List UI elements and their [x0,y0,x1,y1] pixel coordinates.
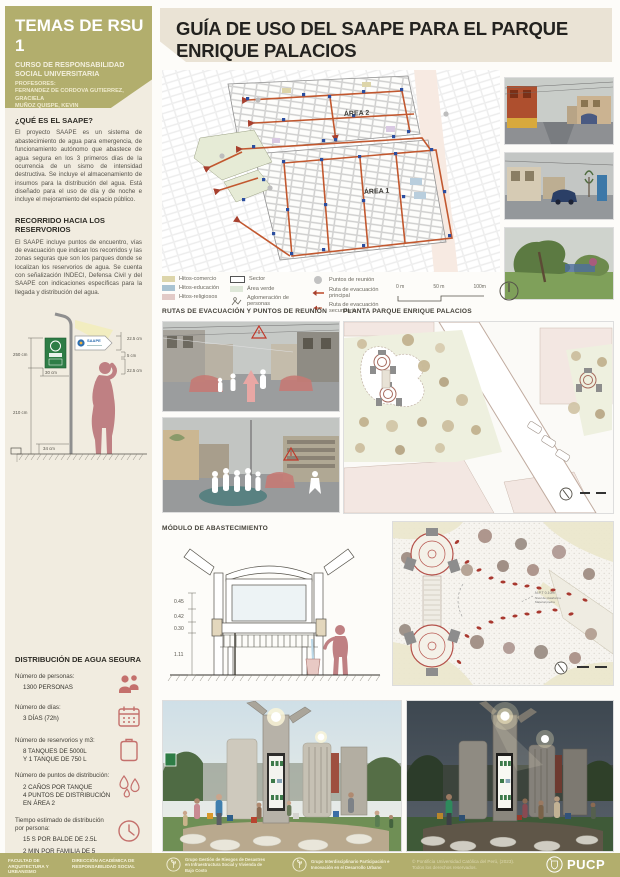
stat-label: Número de reservorios y m3: [15,737,111,745]
group2-logo-icon [292,857,307,872]
stat-label: Tiempo estimado de distribución por pers… [15,817,111,833]
legend-col-areas: Sector Área verde Aglomeración de person… [230,276,308,310]
routes-section-heading: RUTAS DE EVACUACIÓN Y PUNTOS DE REUNIÓN [162,308,327,315]
render-day [162,700,402,852]
stat-value: Y 1 TANQUE DE 750 L [23,756,111,764]
stat-personas: Número de personas: 1300 PERSONAS [5,673,152,696]
professor-name: FERNANDEZ DE CORDOVA GUTIERREZ, GRACIELA [15,88,144,103]
clock-icon [116,818,142,844]
route-primary-arrow-icon [312,289,325,297]
section-heading: ¿QUÉ ES EL SAAPE? [15,116,142,125]
module-detail-plan: N.P.T 0.10m Nivel de plataforma Material… [392,521,614,686]
stat-reservorios: Número de reservorios y m3: 8 TANQUES DE… [5,737,152,765]
section-body: El proyecto SAAPE es un sistema de abast… [15,129,142,204]
footer-faculty-label: FACULTAD DE ARQUITECTURA Y URBANISMO [8,858,49,874]
pucp-logo: PUCP [546,856,605,873]
footer-group2-label: Grupo Interdisciplinario Participación e… [311,859,393,870]
people-icon [116,674,142,696]
compass-icon [498,280,520,302]
legend-swatch-comercio [162,276,175,282]
section-dim: 0.45 [174,599,184,605]
pucp-shield-icon [546,856,563,873]
scale-label: 50 m [433,284,444,290]
signpost-diagram: SAAPE 250 cm 30 cm 2 [9,304,155,462]
context-photo-street-1 [504,77,614,145]
poster-title: GUÍA DE USO DEL SAAPE PARA EL PARQUE ENR… [176,18,612,62]
context-photo-park [504,227,614,300]
sidebar-header: TEMAS DE RSU 1 CURSO DE RESPONSABILIDAD … [5,6,152,108]
copyright-line: Todos los derechos reservados. [412,865,532,871]
section-what-is-saape: ¿QUÉ ES EL SAAPE? El proyecto SAAPE es u… [5,116,152,205]
stat-label: Número de puntos de distribución: [15,772,111,780]
calendar-icon [116,705,142,729]
footer: FACULTAD DE ARQUITECTURA Y URBANISMO DIR… [0,853,620,877]
dim-label: 5 cm [127,353,137,358]
group1-logo-icon [166,857,181,872]
dim-label: 30 cm [45,370,57,375]
stat-value: 8 TANQUES DE 5000L [23,748,111,756]
legend-label: Puntos de reunión [329,277,374,283]
sidebar: TEMAS DE RSU 1 CURSO DE RESPONSABILIDAD … [5,6,152,853]
dim-label: 210 cm [13,410,28,415]
module-section-drawing: 0.45 0.42 0.30 1.11 [162,535,388,693]
footer-copyright: © Pontificia Universidad Católica del Pe… [412,859,532,871]
professor-name: MUÑOZ QUISPE, KEVIN [15,103,144,110]
footer-group1-label: Grupo Gestión de Riesgos de Desastres en… [185,857,271,873]
section-distribucion: DISTRIBUCIÓN DE AGUA SEGURA [5,655,152,664]
course-name: CURSO DE RESPONSABILIDAD SOCIAL UNIVERSI… [15,60,135,78]
section-dim: 0.30 [174,626,184,632]
professors-label: PROFESORES: [15,81,144,88]
dim-label: 22.5 cm [127,368,142,373]
map-scale-bar: 0 m 50 m 100m [396,284,486,308]
section-heading: RECORRIDO HACIA LOS RESERVORIOS [15,216,115,235]
plan-section-heading: PLANTA PARQUE ENRIQUE PALACIOS [343,308,472,315]
dim-label: 250 cm [13,352,28,357]
context-photo-street-2 [504,152,614,220]
legend-label: Sector [249,276,265,282]
poster-series-title: TEMAS DE RSU 1 [15,16,144,56]
scale-label: 100m [473,284,486,290]
evacuation-map: ÁREA 2 ÁREA 1 [162,70,500,272]
stat-value: 4 PUNTOS DE DISTRIBUCIÓN EN ÁREA 2 [23,792,111,809]
saape-sign-label: SAAPE [87,338,101,343]
evacuation-photo-1 [162,321,340,412]
stat-value: 2 CAÑOS POR TANQUE [23,784,111,792]
dim-label: 34 cm [43,446,55,451]
legend-swatch-religiosos [162,294,175,300]
legend-label: Aglomeración de personas [247,295,308,307]
stat-label: Número de personas: [15,673,111,681]
legend-col-hitos: Hitos-comercio Hitos-educación Hitos-rel… [162,276,226,303]
legend-label: Ruta de evacuación principal [329,287,388,299]
title-band: GUÍA DE USO DEL SAAPE PARA EL PARQUE ENR… [160,8,612,62]
plan-note: N.P.T 0.10m [535,591,555,595]
legend-label: Área verde [247,286,274,292]
legend-swatch-sector [230,276,245,283]
water-tank-icon [116,738,142,764]
legend-label: Hitos-comercio [179,276,216,282]
legend-swatch-area-verde [230,286,243,292]
footer-group1: Grupo Gestión de Riesgos de Desastres en… [166,857,271,873]
module-section-heading: MÓDULO DE ABASTECIMIENTO [162,525,268,532]
section-dim: 1.11 [174,652,184,658]
crowd-icon [230,297,243,306]
dim-label: 22.5 cm [127,336,142,341]
stat-dias: Número de días: 3 DÍAS (72h) [5,704,152,729]
legend-swatch-educacion [162,285,175,291]
legend-swatch-punto-reunion [314,276,322,284]
footer-direction-label: DIRECCIÓN ACADÉMICA DE RESPONSABILIDAD S… [72,858,135,869]
section-recorrido: RECORRIDO HACIA LOS RESERVORIOS El SAAPE… [5,216,152,297]
footer-faculty: FACULTAD DE ARQUITECTURA Y URBANISMO [8,858,66,875]
stat-value: 1300 PERSONAS [23,684,111,692]
footer-direction: DIRECCIÓN ACADÉMICA DE RESPONSABILIDAD S… [72,858,136,869]
pucp-logo-text: PUCP [567,857,605,872]
plan-note: Material piedra [535,600,555,604]
scale-bar-graphic [396,295,486,303]
legend-label: Hitos-religiosos [179,294,217,300]
stat-value: 3 DÍAS (72h) [23,715,111,723]
evacuation-photo-2 [162,417,340,513]
person-silhouette [92,362,115,454]
poster: TEMAS DE RSU 1 CURSO DE RESPONSABILIDAD … [0,0,620,877]
stat-puntos: Número de puntos de distribución: 2 CAÑO… [5,772,152,808]
legend-label: Hitos-educación [179,285,219,291]
section-heading: DISTRIBUCIÓN DE AGUA SEGURA [15,655,142,664]
section-dim: 0.42 [174,614,184,620]
section-body: El SAAPE incluye puntos de encuentro, ví… [15,239,142,298]
stat-value: 15 S POR BALDE DE 2.5L [23,836,111,844]
park-master-plan [343,321,614,514]
footer-group2: Grupo Interdisciplinario Participación e… [292,857,393,872]
scale-label: 0 m [396,284,404,290]
water-drops-icon [116,773,142,799]
render-night [406,700,614,852]
stat-label: Número de días: [15,704,111,712]
